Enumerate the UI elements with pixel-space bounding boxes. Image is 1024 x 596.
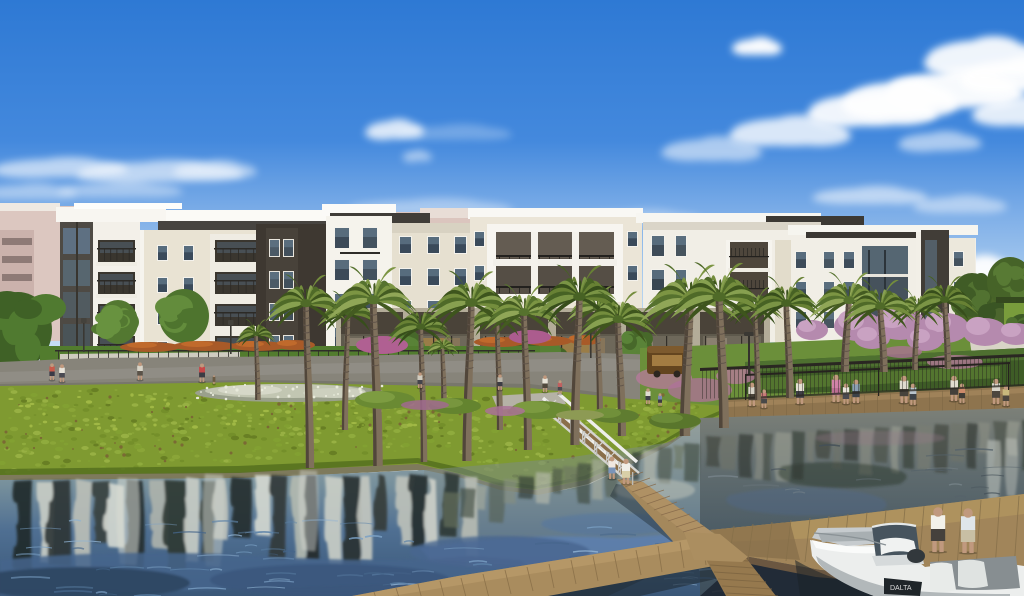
- svg-text:DALTA: DALTA: [890, 585, 912, 592]
